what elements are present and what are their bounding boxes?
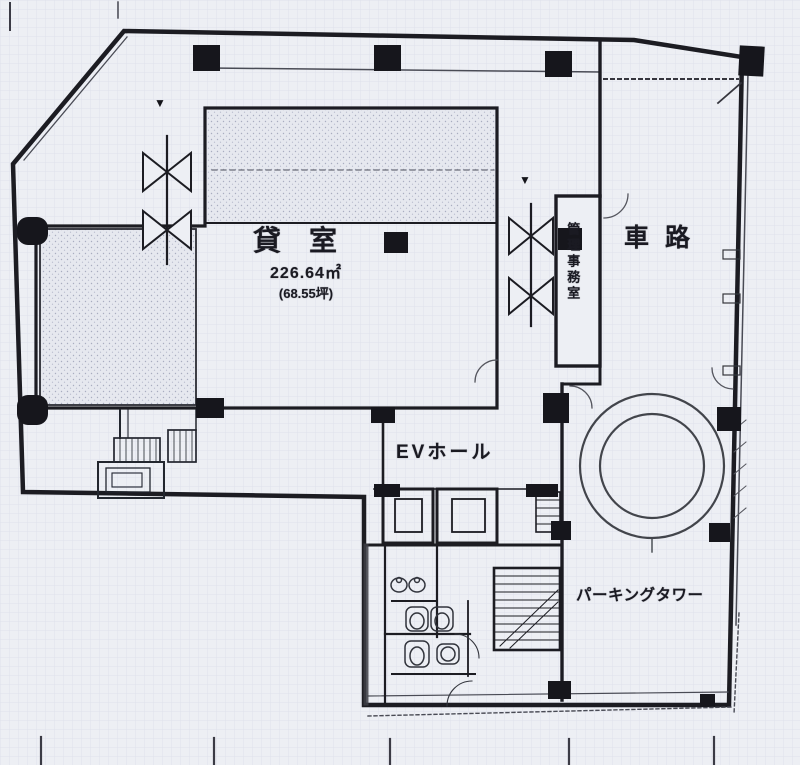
rental-room-area: 226.64㎡: [254, 265, 358, 283]
ev-hall-label: EVホール: [396, 443, 493, 464]
floorplan-page: 貸室 226.64㎡ (68.55坪) EVホール 車路 管理事務室 パーキング…: [0, 0, 800, 765]
floor-plan-drawing: [0, 0, 800, 765]
driveway-label: 車路: [624, 225, 706, 253]
office-label: 管理事務室: [565, 222, 579, 370]
parking-tower-label: パーキングタワー: [576, 587, 704, 604]
entry-marker-icon: ▼: [154, 96, 166, 110]
entry-marker-icon: ▼: [519, 173, 531, 187]
rental-room-label: 貸室: [253, 226, 365, 257]
rental-room-area-tsubo: (68.55坪): [254, 287, 358, 301]
